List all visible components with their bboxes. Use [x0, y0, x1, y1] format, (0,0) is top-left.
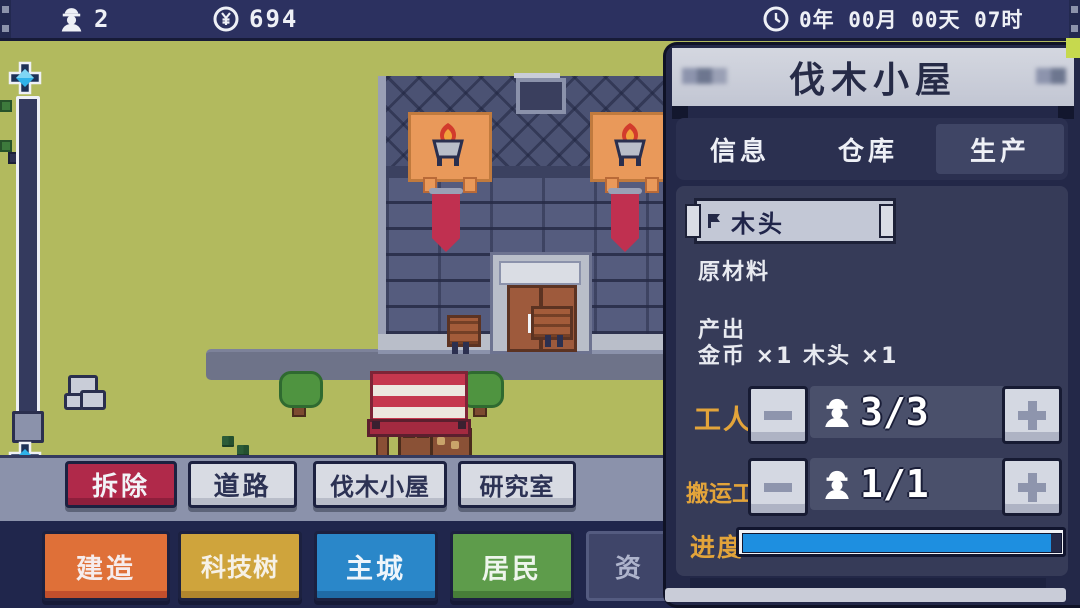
workers-count: 3/3 — [860, 390, 929, 434]
workers-label: 工人 — [694, 398, 752, 437]
grass-tuft — [0, 140, 12, 152]
dropdown-left-knob[interactable] — [685, 204, 701, 238]
torch-icon — [426, 121, 470, 173]
panel-tabs: 信息 仓库 生产 — [676, 118, 1068, 180]
market-stall-bar — [367, 419, 471, 437]
workers-plus-button[interactable] — [1002, 386, 1062, 444]
time-stat: 0年 00月 00天 07时 — [762, 0, 1023, 38]
research-lab-button[interactable]: 研究室 — [458, 461, 576, 508]
progress-bar — [736, 527, 1066, 557]
porters-label: 搬运工 — [686, 474, 755, 508]
wall-banner-right — [590, 112, 674, 182]
build-menu-button[interactable]: 建造 — [42, 531, 170, 601]
porter-crate-right — [531, 306, 573, 340]
item-flag-icon — [705, 212, 723, 230]
demolish-button[interactable]: 拆除 — [65, 461, 177, 508]
tech-tree-button[interactable]: 科技树 — [178, 531, 302, 601]
porter-legs — [452, 342, 458, 354]
minus-icon — [764, 411, 792, 420]
pennant-rod-right — [608, 188, 642, 194]
panel-header: 伐木小屋 — [672, 48, 1074, 106]
minus-icon — [764, 483, 792, 492]
workers-count-field: 3/3 — [810, 386, 1006, 438]
porters-minus-button[interactable] — [748, 458, 808, 516]
sapling — [222, 436, 234, 447]
grass-tuft — [0, 100, 12, 112]
torch-icon — [608, 121, 652, 173]
tab-info[interactable]: 信息 — [676, 118, 804, 180]
scrollbar-thumb[interactable] — [12, 411, 44, 443]
population-stat: 2 — [58, 0, 110, 38]
category-label: 原材料 — [698, 254, 770, 286]
tab-warehouse[interactable]: 仓库 — [804, 118, 932, 180]
panel-bottom-shoulder — [690, 578, 1046, 588]
scroll-up-arrow-icon[interactable] — [7, 60, 43, 96]
plus-icon — [1018, 483, 1046, 492]
pennant-rod-left — [429, 188, 463, 194]
worker-avatar-icon — [820, 395, 854, 429]
door-lintel — [499, 261, 581, 285]
blurred-ornament-left — [682, 68, 727, 84]
gold-stat: 694 — [212, 0, 298, 38]
castle-window — [516, 78, 566, 114]
progress-fill — [743, 534, 1051, 552]
workers-minus-button[interactable] — [748, 386, 808, 444]
plus-icon — [1018, 411, 1046, 420]
porters-count-field: 1/1 — [810, 458, 1006, 510]
scrollbar-track[interactable] — [16, 96, 40, 418]
game-time: 0年 00月 00天 07时 — [799, 4, 1023, 34]
coin-icon — [212, 5, 240, 33]
lumber-cabin-button[interactable]: 伐木小屋 — [313, 461, 447, 508]
panel-title: 伐木小屋 — [789, 51, 957, 103]
porter-legs — [463, 342, 469, 354]
top-status-bar: 2 694 0年 00月 00天 07时 — [0, 0, 1080, 41]
worker-avatar-icon — [820, 467, 854, 501]
game-screen: 拆除 道路 伐木小屋 研究室 建造 科技树 主城 居民 资 伐木小屋 信息 仓库… — [0, 0, 1080, 608]
residents-button[interactable]: 居民 — [450, 531, 574, 601]
blurred-ornament-right — [1036, 68, 1066, 84]
clock-icon — [762, 5, 790, 33]
wall-banner-left — [408, 112, 492, 182]
item-name: 木头 — [731, 204, 785, 239]
dropdown-right-knob[interactable] — [879, 204, 895, 238]
gold-amount: 694 — [249, 5, 298, 33]
panel-bottom-bar[interactable] — [665, 588, 1066, 602]
population-icon — [58, 6, 85, 33]
main-city-button[interactable]: 主城 — [314, 531, 438, 601]
rock — [80, 390, 106, 410]
edge-column-right — [1069, 0, 1080, 38]
item-dropdown[interactable]: 木头 — [694, 198, 896, 244]
porter-legs — [545, 335, 551, 347]
edge-column-left — [0, 0, 11, 38]
tab-production[interactable]: 生产 — [936, 124, 1064, 174]
castle-left-edge — [378, 76, 386, 348]
porters-count: 1/1 — [860, 462, 929, 506]
tree — [279, 371, 323, 408]
road-button[interactable]: 道路 — [188, 461, 297, 508]
population-count: 2 — [94, 5, 110, 33]
map-border-corner — [1066, 38, 1080, 58]
porter-legs — [557, 335, 563, 347]
production-section: 木头 原材料 产出 金币 ×1 木头 ×1 工人 3/3 搬运工 — [676, 186, 1068, 576]
output-value: 金币 ×1 木头 ×1 — [698, 338, 898, 370]
porters-plus-button[interactable] — [1002, 458, 1062, 516]
